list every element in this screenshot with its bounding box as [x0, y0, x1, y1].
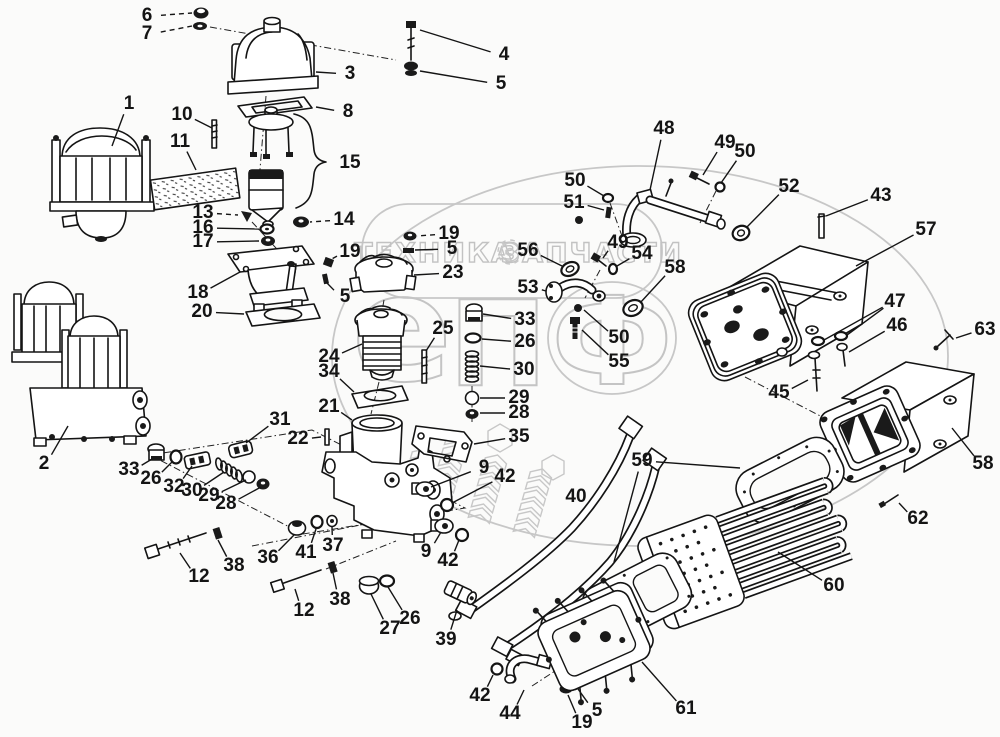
stud-38b [328, 561, 338, 574]
washer-54 [609, 264, 617, 274]
part-label-23: 23 [442, 262, 463, 283]
elbow-44 [505, 655, 552, 683]
bolt-19a [323, 257, 334, 268]
part-label-39: 39 [435, 629, 456, 650]
part-label-38: 38 [223, 555, 244, 576]
leader-line-50 [721, 161, 736, 183]
part-label-12: 12 [188, 566, 209, 587]
washer-41 [312, 516, 323, 528]
leader-line-28 [239, 487, 261, 499]
part-label-47: 47 [884, 291, 905, 312]
nut-37 [327, 516, 337, 527]
part-label-18: 18 [187, 282, 208, 303]
part-label-28: 28 [215, 493, 236, 514]
part-label-26: 26 [140, 468, 161, 489]
part-label-49: 49 [607, 232, 628, 253]
part-label-10: 10 [171, 104, 192, 125]
washer-47a [812, 337, 824, 345]
leader-line-5 [415, 249, 438, 250]
part-label-25: 25 [432, 318, 454, 339]
leader-line-20 [216, 313, 244, 314]
washer-50b2 [575, 216, 583, 224]
filter-element-24 [355, 306, 407, 380]
fitting-63 [934, 330, 954, 351]
leader-line-46 [849, 331, 885, 352]
leader-line-59 [656, 462, 740, 468]
part-label-62: 62 [907, 508, 928, 529]
bolt-12b [271, 570, 321, 592]
fitting-9b [431, 519, 453, 533]
part-label-60: 60 [823, 575, 844, 596]
part-label-27: 27 [379, 618, 400, 639]
ring-42b [456, 529, 468, 541]
nut-19b [404, 232, 417, 241]
washer-7 [193, 22, 207, 30]
washer-16 [261, 225, 274, 234]
leader-line-4 [420, 30, 491, 52]
parts-diagram: ТЕХНИКА ЗАПЧАСТИ е П Ф [0, 0, 1000, 737]
leader-line-11 [187, 152, 196, 170]
part-label-1: 1 [124, 93, 135, 114]
leader-line-9 [434, 532, 441, 543]
part-labels-layer: 6713815451011131617141820195195232524342… [39, 5, 996, 733]
bolt-46 [837, 344, 847, 367]
pickup-tube-48 [620, 179, 725, 248]
part-label-38: 38 [329, 589, 350, 610]
leader-line-36 [278, 535, 294, 551]
leader-line-33 [142, 459, 152, 465]
part-label-55: 55 [608, 351, 630, 372]
fitting-31 [228, 440, 253, 458]
nut-6 [194, 8, 209, 19]
bowl-18 [228, 246, 314, 311]
part-label-5: 5 [592, 700, 603, 721]
leader-line-26 [388, 587, 402, 610]
filter-assembly-2 [12, 282, 150, 446]
plug-33c [466, 304, 482, 321]
leader-line-61 [642, 662, 676, 701]
stud-62 [878, 495, 898, 508]
part-label-42: 42 [469, 685, 490, 706]
washer-26b [380, 576, 394, 587]
leader-line-50 [587, 186, 604, 196]
part-label-30: 30 [513, 359, 534, 380]
leader-line-19 [417, 235, 435, 236]
part-label-9: 9 [479, 457, 490, 478]
parts-diagram-svg: ТЕХНИКА ЗАПЧАСТИ е П Ф [0, 0, 1000, 737]
part-label-44: 44 [499, 703, 521, 724]
part-label-11: 11 [170, 131, 191, 152]
leader-line-13 [217, 214, 238, 215]
part-label-42: 42 [437, 550, 458, 571]
leader-line-14 [310, 221, 330, 222]
leader-line-62 [899, 503, 907, 512]
leader-line-3 [316, 72, 336, 73]
leader-line-19 [568, 695, 576, 713]
brace-15 [294, 114, 326, 208]
part-label-26: 26 [514, 331, 535, 352]
washer-50c [574, 304, 582, 312]
leader-line-27 [371, 594, 383, 619]
part-label-5: 5 [496, 73, 507, 94]
pin-22 [325, 429, 329, 445]
part-label-19: 19 [571, 712, 592, 733]
leader-line-63 [956, 333, 972, 338]
part-label-21: 21 [318, 396, 340, 417]
leader-line-8 [316, 107, 334, 110]
washer-50b [603, 194, 613, 202]
part-label-14: 14 [333, 209, 355, 230]
part-label-53: 53 [517, 277, 538, 298]
part-label-9: 9 [421, 541, 432, 562]
leader-line-38 [333, 573, 336, 589]
leader-line-29 [222, 480, 246, 492]
part-label-59: 59 [631, 450, 652, 471]
leader-line-45 [792, 380, 808, 389]
ring-42c [492, 664, 503, 675]
part-label-8: 8 [343, 101, 354, 122]
leader-line-10 [195, 119, 212, 128]
part-label-51: 51 [563, 192, 585, 213]
leader-line-18 [211, 272, 240, 288]
part-label-37: 37 [322, 535, 343, 556]
part-label-45: 45 [768, 382, 790, 403]
part-label-63: 63 [974, 319, 995, 340]
stud-5b [403, 248, 414, 253]
hex-decor [542, 455, 564, 480]
part-label-2: 2 [39, 453, 50, 474]
part-label-36: 36 [257, 547, 278, 568]
plug-27 [360, 577, 379, 595]
part-label-26: 26 [399, 608, 420, 629]
leader-line-48 [650, 140, 661, 190]
part-label-50: 50 [734, 141, 755, 162]
plug-33a [148, 444, 164, 460]
bolt-45 [809, 352, 821, 392]
part-label-57: 57 [915, 219, 936, 240]
leader-line-17 [217, 241, 259, 242]
stud-10 [212, 120, 217, 148]
ring-42a [441, 499, 453, 511]
leader-line-42 [452, 482, 492, 503]
part-label-50: 50 [608, 327, 629, 348]
part-label-3: 3 [345, 63, 356, 84]
part-label-4: 4 [499, 44, 510, 65]
stud-38a [213, 527, 223, 540]
part-label-33: 33 [118, 459, 139, 480]
nut-14 [293, 217, 309, 228]
pin-43 [818, 214, 825, 238]
leader-line-35 [474, 439, 505, 444]
part-label-56: 56 [517, 240, 538, 261]
leader-line-51 [588, 205, 604, 210]
plug-36 [289, 521, 306, 535]
seat-28b [466, 409, 479, 419]
bolt-49a [689, 171, 709, 184]
part-label-46: 46 [886, 315, 907, 336]
element-assembly-15 [249, 107, 326, 227]
nut-17 [261, 236, 275, 246]
part-label-52: 52 [778, 176, 799, 197]
spring-30a [215, 458, 243, 483]
washer-26a [171, 451, 182, 464]
part-label-42: 42 [494, 466, 515, 487]
spring-30c [466, 351, 479, 382]
part-label-49: 49 [714, 132, 735, 153]
part-label-33: 33 [514, 309, 535, 330]
part-label-5: 5 [340, 286, 351, 307]
part-label-35: 35 [508, 426, 530, 447]
part-label-20: 20 [191, 301, 212, 322]
part-label-19: 19 [339, 241, 360, 262]
stud-51 [605, 207, 611, 219]
part-label-58: 58 [972, 453, 993, 474]
part-label-48: 48 [653, 118, 674, 139]
part-label-54: 54 [631, 243, 653, 264]
cover-3 [228, 18, 318, 95]
stud-25 [422, 350, 427, 383]
leader-line-52 [746, 195, 779, 228]
leader-line-41 [311, 529, 316, 543]
stud-5a [322, 273, 329, 284]
washer-50a [716, 183, 725, 192]
leader-line-22 [312, 437, 321, 438]
leader-line-7 [161, 26, 192, 32]
part-label-31: 31 [269, 409, 291, 430]
part-label-43: 43 [870, 185, 891, 206]
leader-line-16 [217, 228, 259, 229]
part-label-22: 22 [287, 428, 308, 449]
part-label-7: 7 [142, 23, 153, 44]
piston-32 [184, 451, 211, 469]
part-label-5: 5 [447, 238, 458, 259]
bolt-12a [145, 533, 206, 559]
part-label-28: 28 [508, 402, 529, 423]
part-label-15: 15 [339, 152, 361, 173]
part-label-40: 40 [565, 486, 586, 507]
part-label-58: 58 [664, 257, 685, 278]
cooler-housing-57 [684, 246, 868, 385]
part-label-12: 12 [293, 600, 314, 621]
bolt-4 [404, 21, 418, 76]
leader-line-5 [326, 282, 334, 290]
washer-26c [466, 334, 481, 343]
leader-line-30 [204, 472, 224, 485]
filter-assembly-1 [50, 128, 154, 242]
ball-29b [466, 392, 479, 405]
part-label-34: 34 [318, 361, 340, 382]
leader-line-6 [161, 13, 192, 15]
part-label-61: 61 [675, 698, 697, 719]
fitting-9a [412, 482, 434, 496]
screw-13 [241, 211, 252, 222]
part-label-50: 50 [564, 170, 585, 191]
part-label-17: 17 [192, 231, 213, 252]
part-label-41: 41 [295, 542, 317, 563]
leader-line-5 [420, 71, 487, 82]
leader-line-31 [246, 426, 268, 443]
